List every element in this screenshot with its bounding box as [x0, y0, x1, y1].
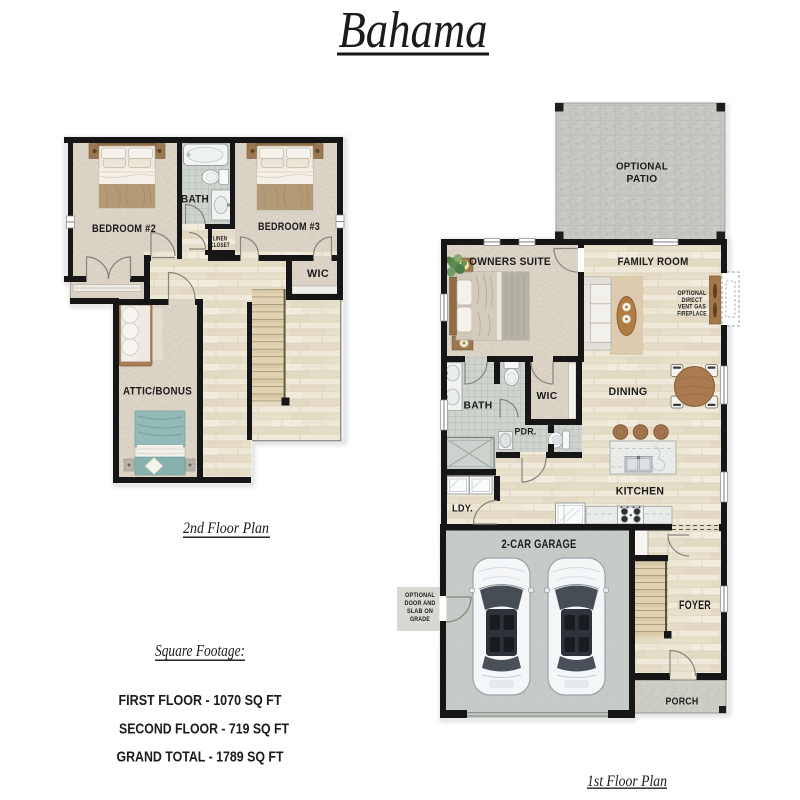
svg-text:ATTIC/BONUS: ATTIC/BONUS	[123, 386, 192, 398]
svg-text:DIRECT: DIRECT	[682, 298, 703, 304]
svg-text:WIC: WIC	[537, 390, 558, 402]
svg-text:1st Floor Plan: 1st Floor Plan	[587, 773, 667, 790]
svg-text:FAMILY ROOM: FAMILY ROOM	[618, 256, 689, 268]
svg-text:BEDROOM #3: BEDROOM #3	[258, 221, 320, 233]
svg-text:PDR.: PDR.	[515, 427, 537, 437]
svg-text:SECOND FLOOR - 719 SQ FT: SECOND FLOOR - 719 SQ FT	[119, 721, 289, 738]
svg-text:CLOSET: CLOSET	[210, 243, 230, 249]
svg-text:DINING: DINING	[609, 386, 648, 398]
svg-text:DOOR AND: DOOR AND	[405, 601, 436, 607]
svg-text:VENT GAS: VENT GAS	[678, 305, 706, 311]
svg-text:2nd Floor Plan: 2nd Floor Plan	[183, 520, 269, 537]
svg-text:LINEN: LINEN	[213, 237, 228, 243]
svg-text:PORCH: PORCH	[666, 696, 699, 708]
svg-text:FIREPLACE: FIREPLACE	[677, 311, 707, 317]
svg-text:GRAND TOTAL - 1789 SQ FT: GRAND TOTAL - 1789 SQ FT	[117, 749, 284, 766]
svg-text:PATIO: PATIO	[627, 173, 658, 185]
svg-text:OPTIONAL: OPTIONAL	[678, 291, 707, 297]
svg-text:OPTIONAL: OPTIONAL	[405, 593, 435, 599]
svg-text:KITCHEN: KITCHEN	[616, 486, 665, 498]
svg-text:BEDROOM #2: BEDROOM #2	[92, 223, 156, 235]
svg-text:FIRST FLOOR - 1070 SQ FT: FIRST FLOOR - 1070 SQ FT	[119, 692, 282, 709]
svg-text:BATH: BATH	[464, 400, 493, 412]
svg-text:GRADE: GRADE	[410, 617, 430, 623]
svg-text:LDY.: LDY.	[452, 503, 473, 515]
svg-text:SLAB ON: SLAB ON	[407, 609, 433, 615]
svg-text:OWNERS SUITE: OWNERS SUITE	[469, 256, 551, 268]
svg-text:2-CAR GARAGE: 2-CAR GARAGE	[502, 539, 577, 551]
svg-text:FOYER: FOYER	[679, 600, 711, 612]
svg-text:Bahama: Bahama	[339, 2, 488, 59]
svg-text:BATH: BATH	[181, 194, 209, 206]
svg-text:OPTIONAL: OPTIONAL	[616, 161, 668, 173]
svg-text:WIC: WIC	[307, 268, 329, 280]
svg-text:Square Footage:: Square Footage:	[155, 641, 245, 660]
